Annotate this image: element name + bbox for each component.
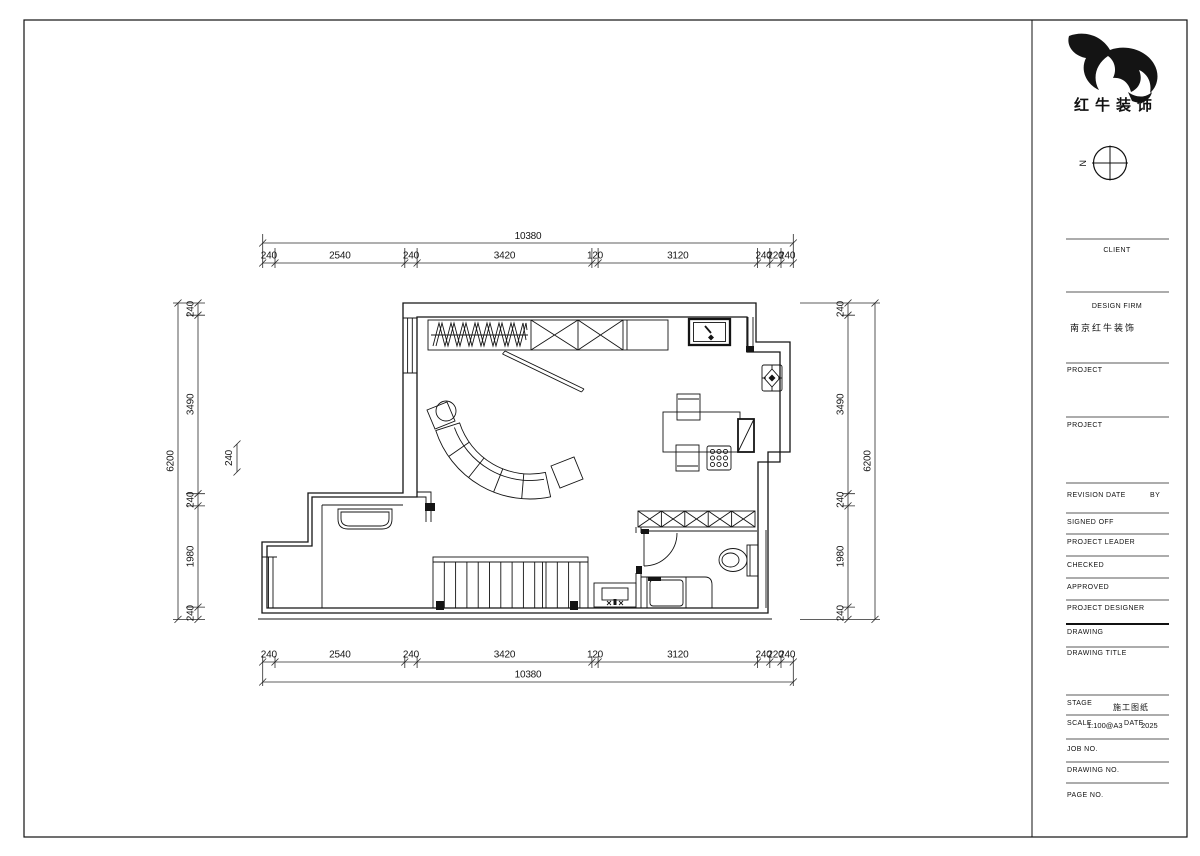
- date-value: 2025: [1141, 721, 1158, 730]
- ottoman: [707, 446, 731, 470]
- laundry-counter: [641, 577, 712, 608]
- dim-seg: 240: [836, 491, 847, 508]
- dim-total-left: 6200: [166, 450, 177, 472]
- stage-value: 施工图纸: [1113, 702, 1149, 712]
- project-label: PROJECT: [1067, 367, 1103, 374]
- dim-seg: 240: [779, 650, 796, 661]
- project-label: PROJECT: [1067, 422, 1103, 429]
- bathroom: [636, 511, 766, 608]
- dim-seg: 240: [186, 300, 197, 317]
- bathroom-cabinet: [638, 511, 755, 527]
- dim-seg: 240: [186, 491, 197, 508]
- job-no-label: JOB NO.: [1067, 746, 1098, 753]
- design-firm-label: DESIGN FIRM: [1092, 303, 1142, 310]
- dim-floating: 240: [224, 441, 241, 476]
- kitchen-sink: [689, 319, 730, 345]
- bathroom-door: [636, 529, 677, 574]
- duct-shaft: [738, 419, 754, 452]
- brand-name: 红牛装饰: [1074, 96, 1158, 114]
- dim-seg: 2540: [329, 251, 351, 262]
- dim-seg: 240: [224, 449, 235, 466]
- dim-seg: 3490: [186, 393, 197, 415]
- dim-total-bottom: 10380: [515, 670, 542, 681]
- side-table: [436, 401, 456, 421]
- vanity-sink: [594, 583, 636, 607]
- dim-seg: 240: [779, 251, 796, 262]
- dim-seg: 240: [261, 251, 278, 262]
- north-compass: N: [1078, 146, 1128, 181]
- curved-sofa: [427, 402, 583, 499]
- dim-seg: 3420: [494, 650, 516, 661]
- handrail: [503, 351, 585, 392]
- drawing-label: DRAWING: [1067, 629, 1103, 636]
- page-no-label: PAGE NO.: [1067, 792, 1104, 799]
- dimensions-bottom: 240 2540 240 3420 120 3120 240 220 240 1…: [259, 650, 797, 687]
- dim-seg: 240: [403, 650, 420, 661]
- design-firm-value: 南京红牛装饰: [1070, 322, 1136, 333]
- stairs: [433, 557, 588, 610]
- hangers: [431, 323, 528, 346]
- drawing-sheet: 10380 240 2540 240 3420 120 3120 240 220…: [0, 0, 1200, 856]
- dim-seg: 240: [186, 605, 197, 622]
- dimensions-top: 10380 240 2540 240 3420 120 3120 240 220…: [259, 231, 797, 268]
- dim-seg: 240: [261, 650, 278, 661]
- niche-light-fixture: [762, 365, 782, 391]
- dim-seg: 240: [836, 300, 847, 317]
- project-leader-label: PROJECT LEADER: [1067, 539, 1135, 546]
- dim-seg: 3490: [836, 393, 847, 415]
- dim-seg: 2540: [329, 650, 351, 661]
- dim-seg: 3120: [667, 650, 689, 661]
- dim-seg: 3120: [667, 251, 689, 262]
- dim-total-top: 10380: [515, 231, 542, 242]
- dimensions-right: 240 3490 240 1980 240 6200: [800, 300, 880, 623]
- approved-label: APPROVED: [1067, 584, 1109, 591]
- dim-seg: 120: [587, 650, 604, 661]
- drawing-title-label: DRAWING TITLE: [1067, 650, 1127, 657]
- chair: [677, 394, 700, 420]
- north-label: N: [1078, 160, 1088, 167]
- by-label: BY: [1150, 492, 1160, 499]
- chair: [676, 445, 699, 471]
- window-left: [403, 318, 417, 373]
- dim-seg: 120: [587, 251, 604, 262]
- dim-seg: 240: [403, 251, 420, 262]
- signed-off-label: SIGNED OFF: [1067, 519, 1114, 526]
- dim-seg: 1980: [836, 545, 847, 567]
- toilet: [719, 545, 758, 576]
- dim-seg: 240: [836, 605, 847, 622]
- wardrobe-cabinet: [428, 320, 668, 350]
- washing-machine: [647, 577, 686, 608]
- client-label: CLIENT: [1103, 247, 1131, 254]
- dining-table: [663, 394, 740, 471]
- title-block: 红牛装饰 N CLIENT DESIGN FIRM 南京红牛装饰 PROJECT…: [1066, 34, 1169, 799]
- stage-label: STAGE: [1067, 700, 1092, 707]
- revision-label: REVISION: [1067, 492, 1104, 499]
- date-col-label: DATE: [1106, 492, 1126, 499]
- window-balcony: [262, 557, 277, 608]
- project-designer-label: PROJECT DESIGNER: [1067, 605, 1144, 612]
- basin-counter: [322, 505, 403, 608]
- dim-seg: 3420: [494, 251, 516, 262]
- scale-value: 1:100@A3: [1087, 721, 1123, 730]
- dim-seg: 1980: [186, 545, 197, 567]
- brand-logo: [1068, 34, 1157, 103]
- sheet-border: [24, 20, 1187, 837]
- checked-label: CHECKED: [1067, 562, 1104, 569]
- floor-plan-canvas: 10380 240 2540 240 3420 120 3120 240 220…: [0, 0, 1200, 856]
- dim-total-right: 6200: [863, 450, 874, 472]
- dimensions-left: 6200 240 3490 240 1980 240 240: [166, 300, 241, 623]
- floor-plan: [258, 303, 790, 619]
- drawing-no-label: DRAWING NO.: [1067, 767, 1119, 774]
